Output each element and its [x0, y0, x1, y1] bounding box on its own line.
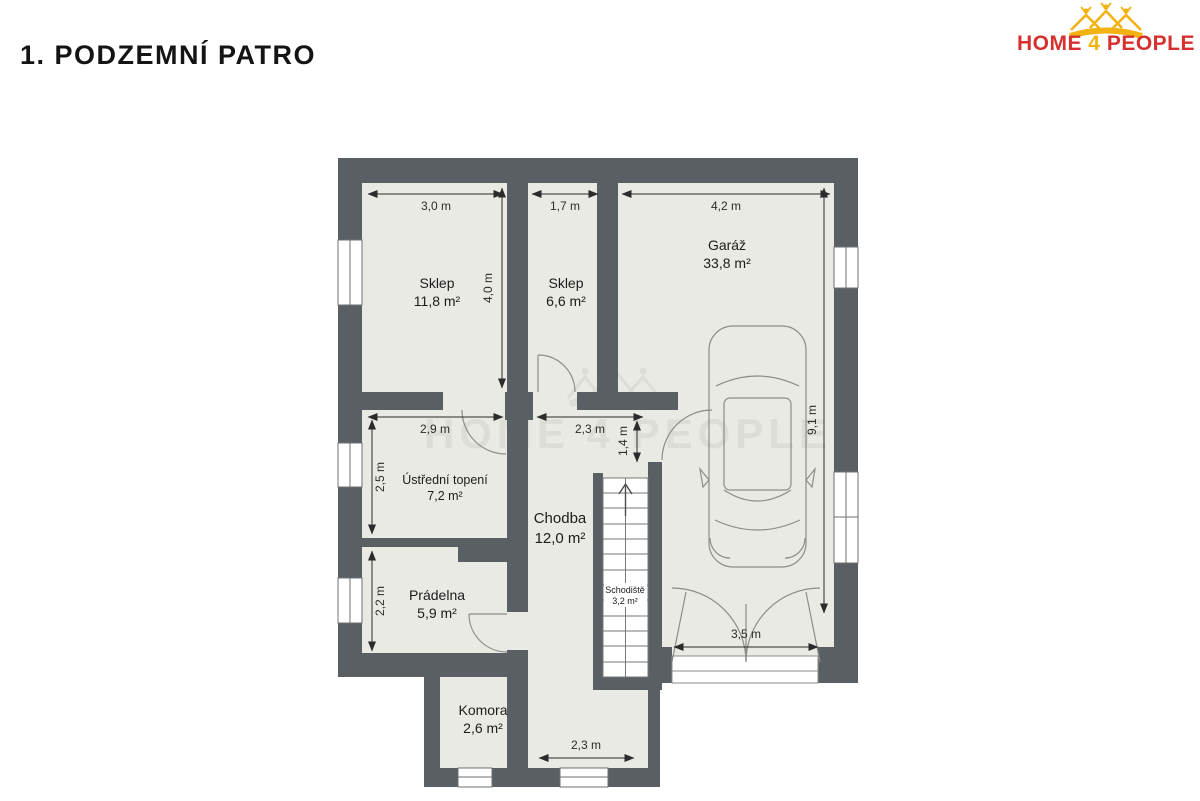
dim-label: 3,0 m	[421, 199, 451, 213]
room-area-ustredni-topeni: 7,2 m²	[427, 489, 462, 503]
room-area-sklep-2: 6,6 m²	[546, 293, 586, 309]
room-label-pradelna: Prádelna	[409, 587, 465, 603]
room-label-sklep-2: Sklep	[548, 275, 583, 291]
dim-label: 2,2 m	[373, 586, 387, 616]
room-label-chodba: Chodba	[534, 510, 587, 527]
dim-label: 2,3 m	[575, 422, 605, 436]
room-label-ustredni-topeni: Ústřední topení	[402, 472, 488, 487]
dim-label: 1,4 m	[616, 426, 630, 456]
dim-label: 2,3 m	[571, 738, 601, 752]
page-title: 1. PODZEMNÍ PATRO	[20, 40, 316, 71]
window	[834, 247, 858, 288]
room-label-sklep-1: Sklep	[419, 275, 454, 291]
garage-door-threshold	[672, 656, 818, 683]
window	[338, 578, 362, 623]
room-label-komora: Komora	[458, 702, 507, 718]
room-label-schodiste: Schodiště	[605, 585, 645, 595]
room-area-sklep-1: 11,8 m²	[414, 293, 461, 309]
dim-label: 1,7 m	[550, 199, 580, 213]
dim-label: 2,5 m	[373, 462, 387, 492]
logo: HOME 4 PEOPLE	[1017, 3, 1195, 55]
window	[338, 443, 362, 487]
room-area-komora: 2,6 m²	[463, 720, 503, 736]
dim-label: 2,9 m	[420, 422, 450, 436]
room-area-schodiste: 3,2 m²	[612, 596, 638, 606]
room-area-pradelna: 5,9 m²	[417, 605, 457, 621]
dim-label: 3,5 m	[731, 627, 761, 641]
floor-plan: HOME 4 PEOPLE	[0, 0, 1200, 801]
staircase: Schodiště 3,2 m²	[603, 478, 648, 677]
dim-label: 4,2 m	[711, 199, 741, 213]
dim-label: 4,0 m	[481, 273, 495, 303]
window	[560, 768, 608, 787]
room-area-garaz: 33,8 m²	[703, 255, 751, 271]
logo-text: HOME 4 PEOPLE	[1017, 32, 1195, 55]
room-label-garaz: Garáž	[708, 237, 746, 253]
floor-plan-page: 1. PODZEMNÍ PATRO HOME 4 PEOPLE	[0, 0, 1200, 801]
window	[338, 240, 362, 305]
window	[834, 472, 858, 563]
room-area-chodba: 12,0 m²	[535, 530, 586, 547]
dim-label: 9,1 m	[805, 405, 819, 435]
window	[458, 768, 492, 787]
